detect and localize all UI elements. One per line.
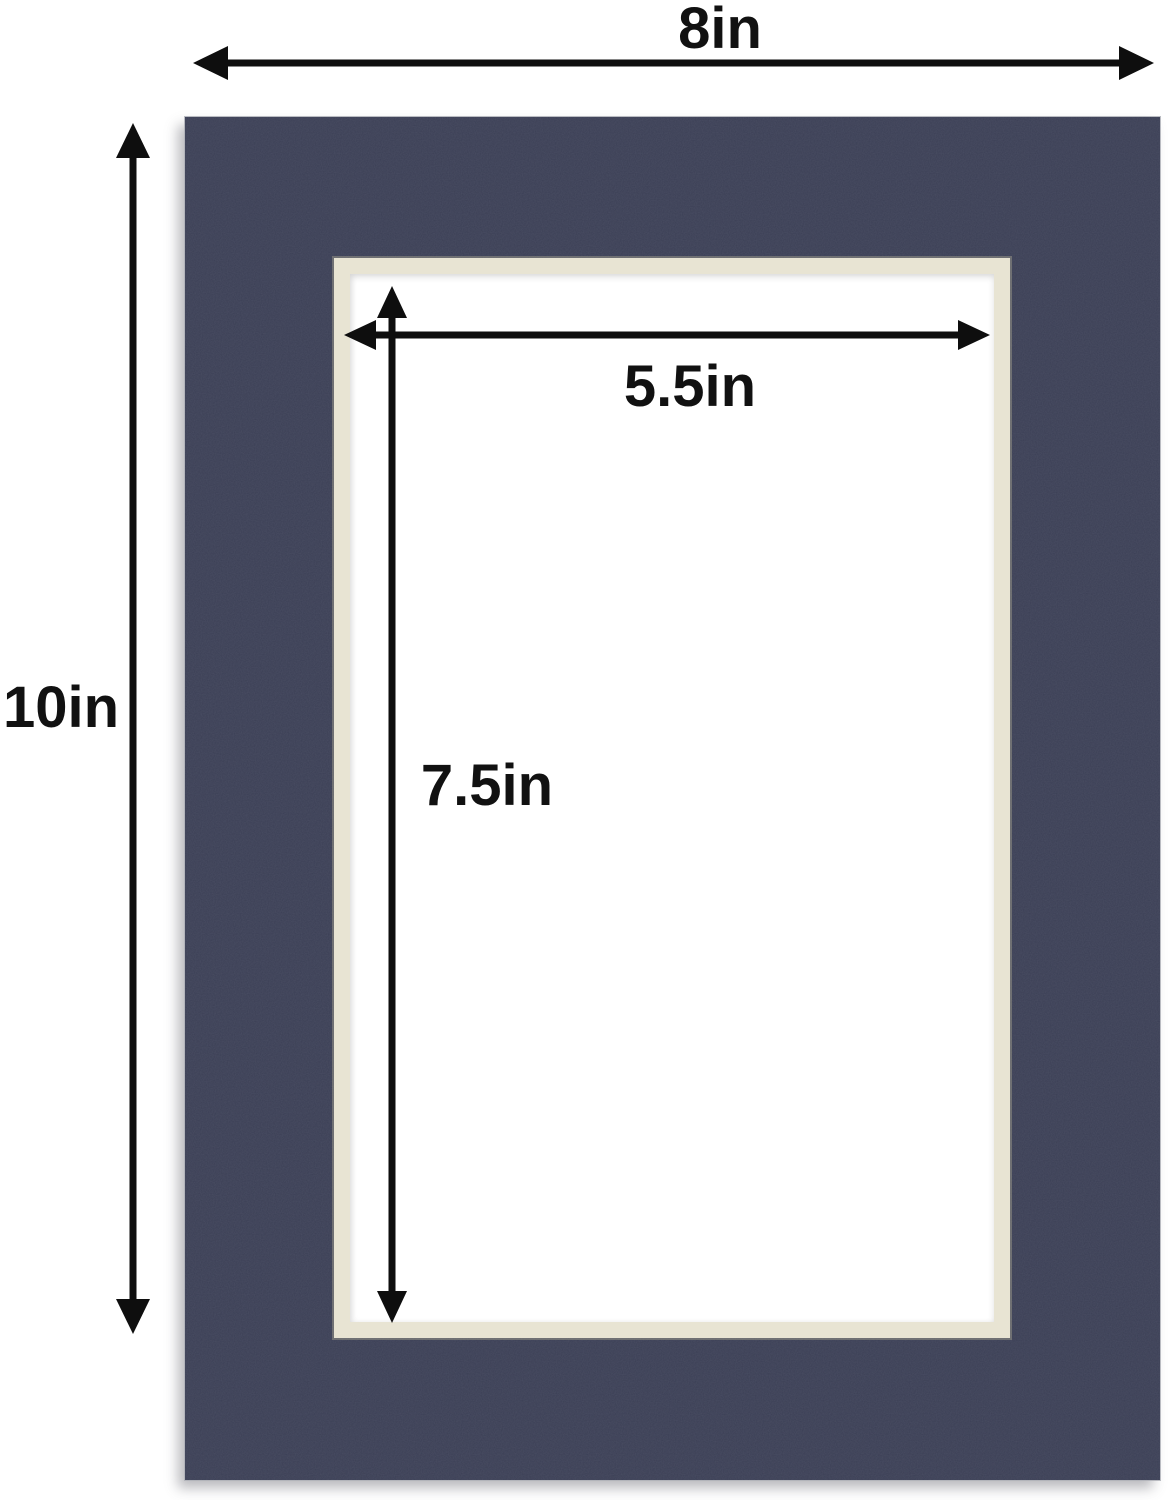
mat-dimension-diagram: 8in 10in 5.5in 7.5in — [0, 0, 1170, 1500]
outer-height-arrow — [116, 123, 150, 1334]
mat-board — [185, 117, 1160, 1480]
opening-width-label: 5.5in — [580, 358, 800, 416]
outer-width-label: 8in — [655, 0, 785, 58]
outer-height-label: 10in — [2, 679, 120, 737]
opening-height-label: 7.5in — [377, 757, 597, 815]
